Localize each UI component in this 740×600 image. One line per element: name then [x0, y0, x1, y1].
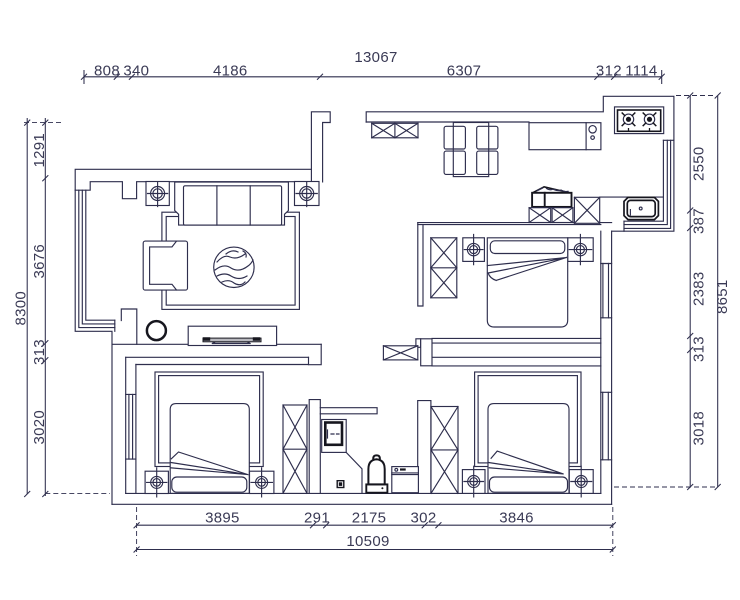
svg-text:10509: 10509 — [346, 533, 389, 550]
svg-text:3846: 3846 — [499, 510, 534, 527]
svg-text:387: 387 — [691, 208, 708, 234]
svg-text:3020: 3020 — [31, 410, 48, 445]
svg-text:2550: 2550 — [691, 146, 708, 181]
svg-text:13067: 13067 — [354, 49, 397, 66]
svg-text:291: 291 — [304, 510, 330, 527]
svg-text:8300: 8300 — [13, 291, 30, 326]
svg-text:312: 312 — [596, 62, 622, 79]
svg-text:313: 313 — [691, 336, 708, 362]
svg-text:2175: 2175 — [352, 510, 387, 527]
svg-text:2383: 2383 — [691, 271, 708, 306]
svg-text:340: 340 — [123, 62, 149, 79]
svg-text:4186: 4186 — [213, 62, 248, 79]
svg-text:3018: 3018 — [691, 411, 708, 446]
svg-text:6307: 6307 — [447, 62, 482, 79]
svg-text:1291: 1291 — [31, 133, 48, 168]
svg-text:302: 302 — [411, 510, 437, 527]
svg-text:3676: 3676 — [31, 244, 48, 279]
svg-text:8651: 8651 — [714, 279, 731, 314]
svg-text:313: 313 — [31, 339, 48, 365]
svg-text:1114: 1114 — [625, 62, 657, 79]
svg-text:3895: 3895 — [205, 510, 240, 527]
svg-text:808: 808 — [94, 62, 120, 79]
